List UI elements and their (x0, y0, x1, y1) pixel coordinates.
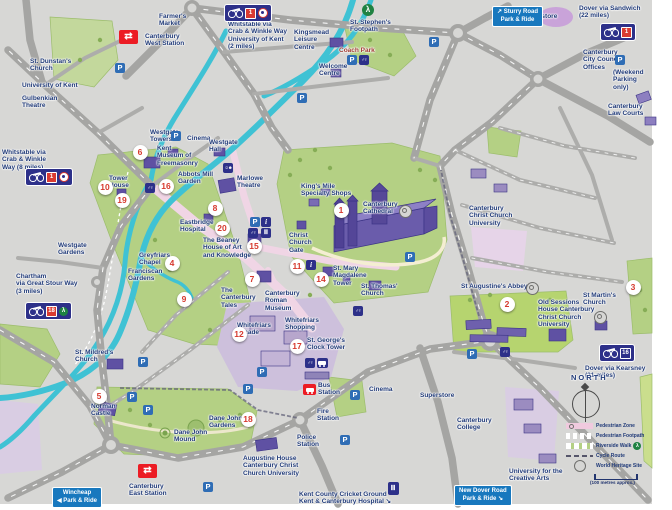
legend-label: World Heritage Site (596, 463, 642, 469)
bus-station-icon (303, 384, 316, 395)
legend-row: Riverside Walkλ (566, 441, 658, 451)
bus-stop-icon (317, 358, 328, 368)
crab-and-winkle-roundel-icon (59, 172, 69, 182)
map-label: Fire Station (317, 408, 339, 423)
map-label: Whitefriars Shopping (285, 317, 319, 332)
map-label: University for the Creative Arts (509, 468, 562, 483)
parking-icon: P (171, 131, 181, 141)
map-label: The Beaney House of Art and Knowledge (203, 237, 251, 259)
map-label: Eastbridge Hospital (180, 219, 214, 234)
map-label: Bus Station (318, 382, 340, 397)
attraction-marker-2[interactable]: 2 (500, 297, 515, 312)
map-label: King's Mile Specialty Shops (301, 183, 351, 198)
map-label: St. Stephen's Footpath (350, 19, 391, 34)
riverside-walk-swatch (566, 443, 593, 449)
attraction-marker-10[interactable]: 10 (98, 180, 113, 195)
map-label: Cinema (369, 386, 392, 393)
cycle-route-number: 1 (245, 8, 256, 19)
map-label: The Canterbury Tales (221, 287, 256, 309)
toilets-icon: ♂♀ (305, 358, 315, 368)
map-label: Christ Church Gate (289, 232, 312, 254)
park-and-ride-sign: Wincheap ◀ Park & Ride (52, 487, 102, 508)
scale-bar (594, 475, 638, 480)
bicycle-icon (604, 28, 619, 37)
cycle-route-number: 18 (46, 306, 57, 317)
attraction-marker-20[interactable]: 20 (215, 221, 230, 236)
legend-row: Pedestrian Zone (566, 421, 658, 431)
attraction-marker-17[interactable]: 17 (290, 339, 305, 354)
attraction-marker-14[interactable]: 14 (314, 272, 329, 287)
cycle-route-sign: 1 (25, 168, 73, 186)
national-rail-station-icon: ⇄ (138, 464, 157, 478)
map-label: University of Kent (22, 82, 78, 89)
cycle-route-swatch (566, 455, 593, 458)
north-compass (572, 390, 600, 418)
map-legend: Pedestrian ZonePedestrian FootpathRivers… (566, 421, 658, 485)
attraction-marker-4[interactable]: 4 (165, 256, 180, 271)
bus-glyph (318, 361, 326, 365)
legend-label: Cycle Route (596, 453, 625, 459)
attraction-marker-5[interactable]: 5 (92, 389, 107, 404)
map-label: Kingsmead Leisure Centre (294, 29, 329, 51)
map-label: Canterbury West Station (145, 33, 184, 48)
map-label: Canterbury Law Courts (608, 103, 643, 118)
toilets-icon: ♂♀ (145, 183, 155, 193)
attraction-marker-6[interactable]: 6 (133, 145, 148, 160)
attraction-marker-11[interactable]: 11 (290, 259, 305, 274)
world-heritage-swatch (566, 463, 593, 469)
parking-icon: P (615, 55, 625, 65)
map-label: Kent Museum of Freemasonry (157, 145, 198, 167)
crab-and-winkle-roundel-icon (258, 8, 268, 18)
map-label: Abbots Mill Garden (178, 171, 213, 186)
map-label: Canterbury East Station (129, 483, 167, 498)
map-label: Canterbury Cathedral (363, 201, 398, 216)
map-label: Cinema (187, 135, 210, 142)
cycle-route-sign: 1 (224, 4, 272, 22)
legend-row: Pedestrian Footpath (566, 431, 658, 441)
legend-row: World Heritage Site (566, 461, 658, 471)
world-heritage-site-icon (526, 282, 539, 295)
cycle-route-number: 1 (621, 27, 632, 38)
map-label: St Martin's Church (583, 292, 616, 307)
toilets-icon: ♂♀ (359, 55, 369, 65)
bicycle-icon (29, 173, 44, 182)
attraction-marker-16[interactable]: 16 (159, 179, 174, 194)
world-heritage-site-icon (399, 205, 412, 218)
toilets-icon: ♂♀ (248, 228, 258, 238)
park-and-ride-sign: New Dover Road Park & Ride ↘ (454, 485, 512, 506)
map-label: Superstore (420, 392, 454, 399)
map-label: Welcome Centre (319, 63, 347, 78)
riverside-walk-icon: λ (633, 442, 641, 450)
parking-icon: P (467, 349, 477, 359)
cycle-route-sign: 18λ (25, 302, 72, 320)
parking-icon: P (340, 435, 350, 445)
map-label: Gulbenkian Theatre (22, 95, 57, 110)
parking-icon: P (250, 217, 260, 227)
scale-text: (100 metres approx.) (590, 480, 658, 485)
cricket-ground-hospital-icon: Ⅲ (388, 482, 399, 495)
map-label: (Weekend Parking only) (613, 69, 644, 91)
bicycle-icon (29, 307, 44, 316)
parking-icon: P (347, 55, 357, 65)
map-label: Westgate Hall (209, 139, 238, 154)
parking-icon: P (297, 93, 307, 103)
parking-icon: P (138, 357, 148, 367)
parking-icon: P (115, 63, 125, 73)
map-label: St. Dunstan's Church (30, 58, 71, 73)
legend-label: Pedestrian Zone (596, 423, 635, 429)
parking-icon: P (143, 405, 153, 415)
attraction-marker-12[interactable]: 12 (232, 327, 247, 342)
map-label: St. Thomas' Church (361, 283, 398, 298)
world-heritage-site-icon (574, 460, 586, 472)
world-heritage-site-icon (594, 311, 607, 324)
attraction-marker-19[interactable]: 19 (115, 193, 130, 208)
museum-icon: Ⅲ (261, 228, 271, 238)
cycle-route-number: 1 (46, 172, 57, 183)
map-label: Whitstable via Crab & Winkle Way Univers… (228, 21, 287, 50)
map-label: St. George's Clock Tower (307, 337, 345, 352)
attraction-marker-3[interactable]: 3 (626, 280, 641, 295)
bicycle-icon (603, 349, 618, 358)
parking-icon: P (257, 367, 267, 377)
map-label: Kent County Cricket Ground Kent & Canter… (299, 491, 391, 506)
map-label: Westgate Gardens (58, 242, 87, 257)
cycle-route-sign: 1 (600, 23, 636, 41)
park-and-ride-sign: ↗ Sturry Road Park & Ride (492, 6, 543, 27)
map-label: Police Station (297, 434, 319, 449)
map-label: Farmer's Market (159, 13, 186, 28)
national-rail-station-icon: ⇄ (119, 30, 138, 44)
riverside-walk-icon: λ (59, 307, 68, 316)
parking-icon: P (429, 37, 439, 47)
map-label: Coach Park (339, 47, 375, 54)
parking-icon: P (127, 392, 137, 402)
map-label: St Augustine's Abbey (461, 283, 527, 290)
cycle-route-number: 16 (620, 348, 631, 359)
attraction-marker-15[interactable]: 15 (247, 239, 262, 254)
bus-glyph (306, 388, 314, 392)
map-label: Dane John Mound (174, 429, 207, 444)
riverside-walk-icon: λ (362, 4, 374, 16)
map-label: Dover via Sandwich (22 miles) (579, 5, 640, 20)
map-label: Franciscan Gardens (128, 268, 162, 283)
toilets-icon: ♂♀ (500, 347, 510, 357)
map-label: Norman Castle (91, 403, 116, 418)
map-label: Augustine House Canterbury Christ Church… (243, 455, 299, 477)
attraction-marker-8[interactable]: 8 (208, 201, 223, 216)
canterbury-city-map: University of KentGulbenkian TheatreSt. … (0, 0, 672, 510)
legend-label: Pedestrian Footpath (596, 433, 644, 439)
map-label: Chartham via Great Stour Way (3 miles) (16, 273, 78, 295)
map-label: St. Mildred's Church (75, 349, 113, 364)
legend-label: Riverside Walk (596, 443, 631, 449)
information-icon: i (261, 217, 271, 227)
bicycle-icon (228, 9, 243, 18)
parking-icon: P (243, 384, 253, 394)
map-label: Canterbury Christ Church University (469, 205, 512, 227)
toilets-icon: ♂♀ (353, 306, 363, 316)
map-label: Marlowe Theatre (237, 175, 263, 190)
map-label: Canterbury College (457, 417, 492, 432)
map-label: Canterbury Roman Museum (265, 290, 300, 312)
pedestrian-footpath-swatch (566, 433, 593, 439)
attraction-marker-7[interactable]: 7 (245, 272, 260, 287)
attraction-marker-1[interactable]: 1 (334, 203, 349, 218)
map-label: Dane John Gardens (209, 415, 242, 430)
attraction-marker-18[interactable]: 18 (241, 412, 256, 427)
map-label: NORTH (571, 374, 608, 382)
attraction-marker-9[interactable]: 9 (177, 292, 192, 307)
parking-icon: P (405, 252, 415, 262)
theatre-masks-icon: ☺☻ (223, 163, 233, 173)
cycle-route-sign: 16 (599, 344, 635, 362)
parking-icon: P (350, 390, 360, 400)
information-icon: i (306, 260, 316, 270)
parking-icon: P (203, 482, 213, 492)
